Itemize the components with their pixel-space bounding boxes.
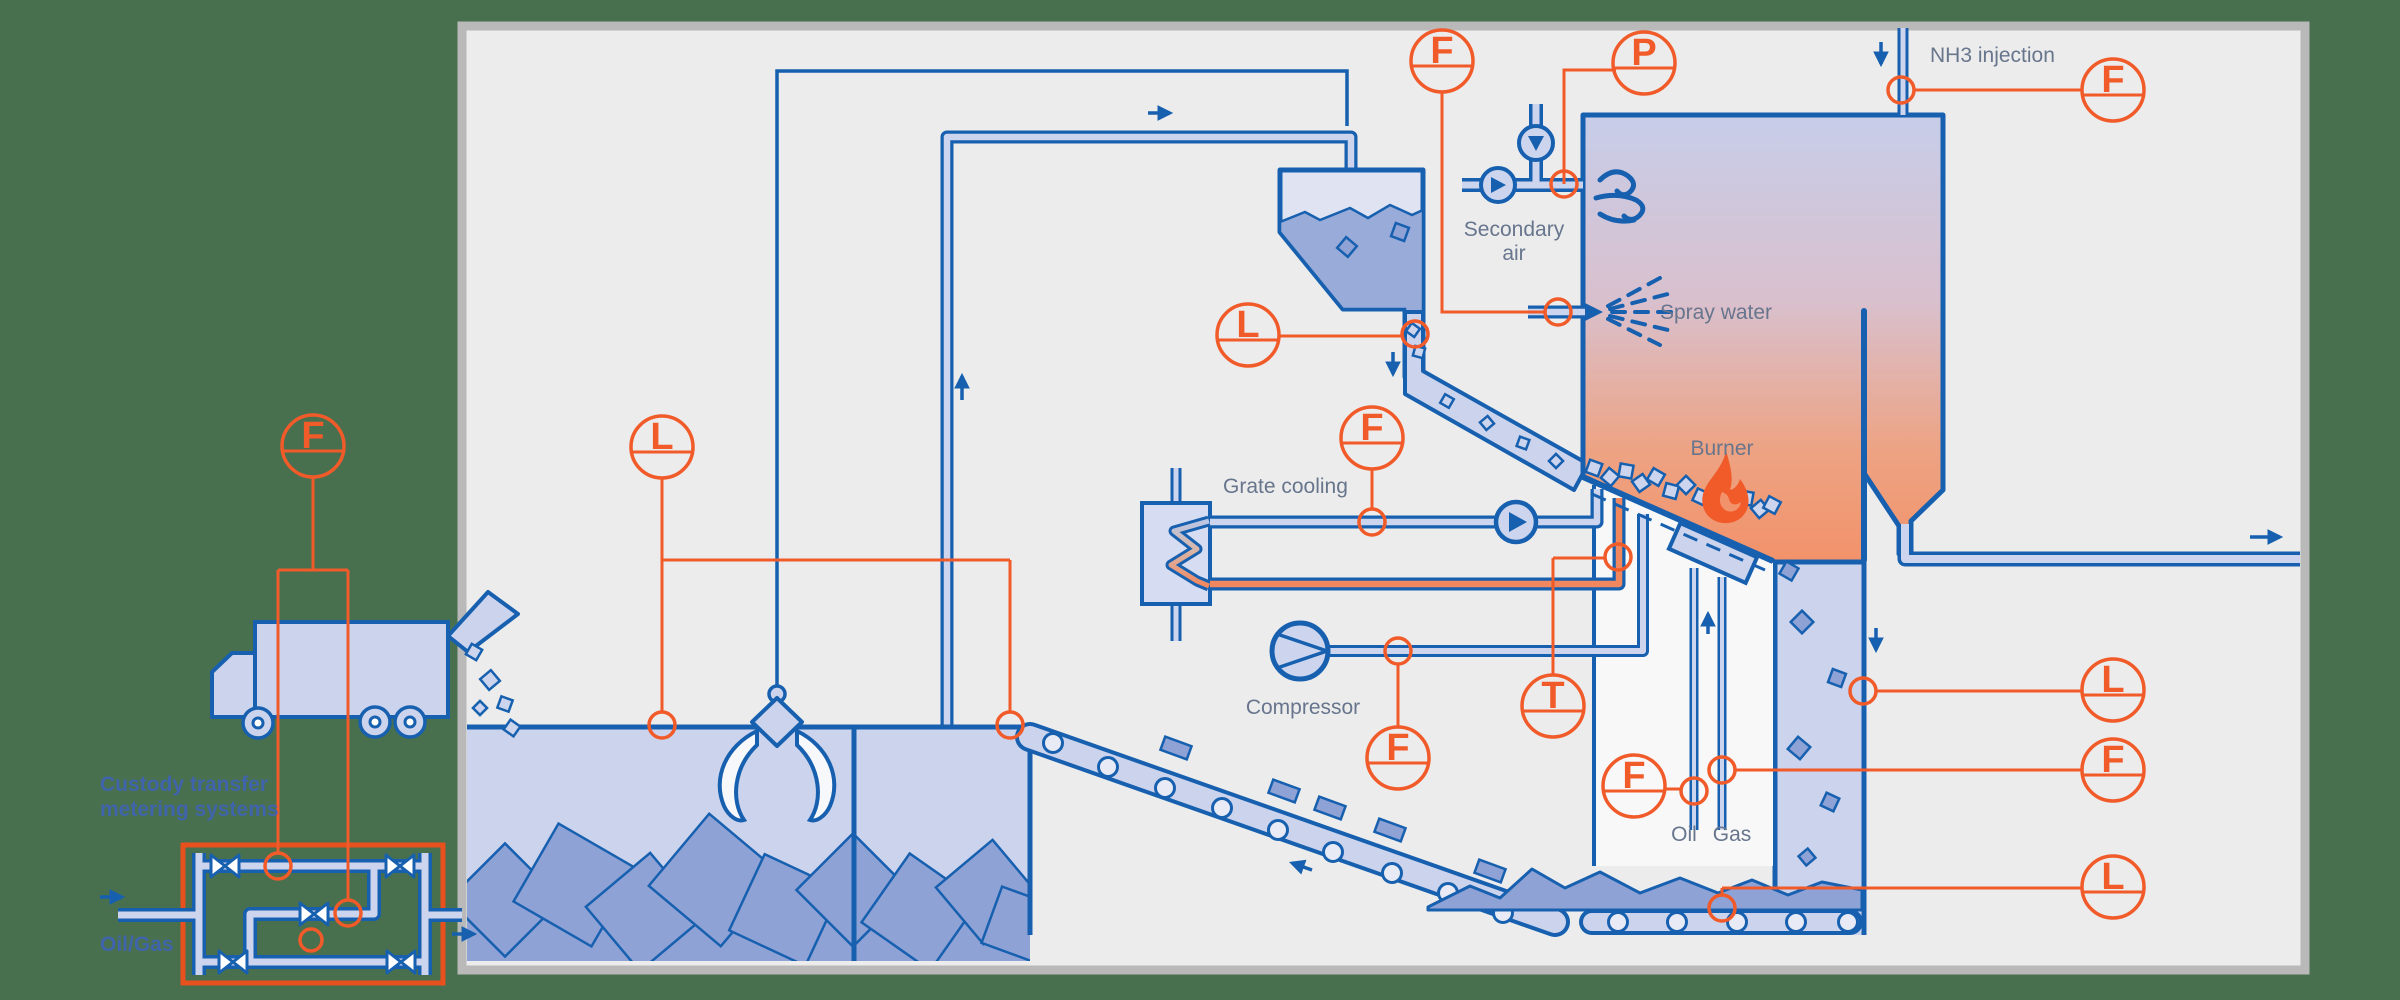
custody-metering-skid (100, 845, 474, 983)
spray-water-label: Spray water (1660, 301, 1772, 324)
instrument-letter: P (1631, 32, 1656, 74)
custody-label-line1: Custody transfer (100, 773, 268, 796)
secondary-air-label-line2: air (1502, 242, 1525, 265)
compressor-icon (1272, 623, 1328, 679)
skid-spare-tap (300, 929, 322, 951)
instrument-letter: F (2101, 739, 2124, 781)
custody-label-line2: metering systems (100, 798, 279, 821)
instrument-letter: F (1622, 755, 1645, 797)
instrument-letter: F (1360, 407, 1383, 449)
truck-body (255, 622, 448, 717)
oil-label: Oil (1671, 823, 1697, 846)
gas-label: Gas (1713, 823, 1752, 846)
instrument-letter: F (2101, 59, 2124, 101)
process-diagram-canvas: F L L F P F F F T F L F (0, 0, 2400, 1000)
instrument-letter: T (1541, 675, 1564, 717)
burner-label: Burner (1690, 437, 1753, 460)
compressor-label: Compressor (1246, 696, 1360, 719)
truck-cab (212, 653, 255, 717)
oil-gas-label: Oil/Gas (100, 933, 174, 956)
instrument-letter: L (2101, 856, 2124, 898)
instrument-letter: F (1430, 30, 1453, 72)
instrument-letter: L (650, 416, 673, 458)
instrument-letter: F (1386, 727, 1409, 769)
nh3-injection-label: NH3 injection (1930, 44, 2055, 67)
secondary-air-label-line1: Secondary (1464, 218, 1565, 241)
furnace-body (1583, 115, 1943, 562)
instrument-letter: L (2101, 659, 2124, 701)
instrument-letter: F (301, 415, 324, 457)
incineration-plant-diagram: F L L F P F F F T F L F (0, 0, 2400, 1000)
grate-cooling-label: Grate cooling (1223, 475, 1348, 498)
instrument-badge-truck-flow: F (282, 415, 344, 477)
instrument-letter: L (1236, 304, 1259, 346)
